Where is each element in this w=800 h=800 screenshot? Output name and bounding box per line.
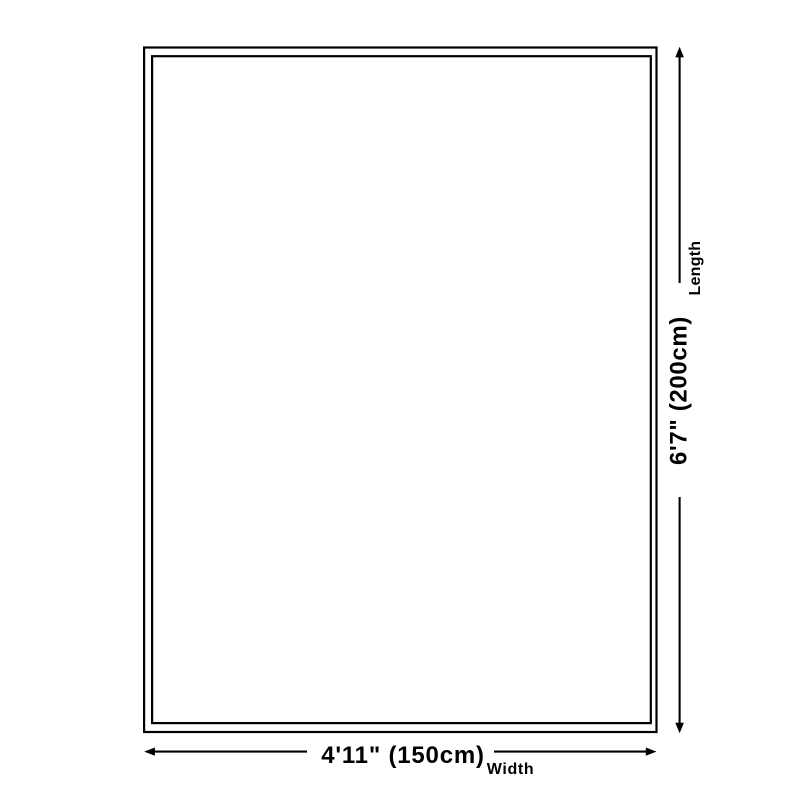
svg-text:6'7" (200cm): 6'7" (200cm) (665, 316, 692, 465)
svg-text:Width: Width (487, 761, 535, 778)
svg-text:Length: Length (687, 241, 704, 296)
svg-text:4'11" (150cm): 4'11" (150cm) (321, 742, 485, 769)
